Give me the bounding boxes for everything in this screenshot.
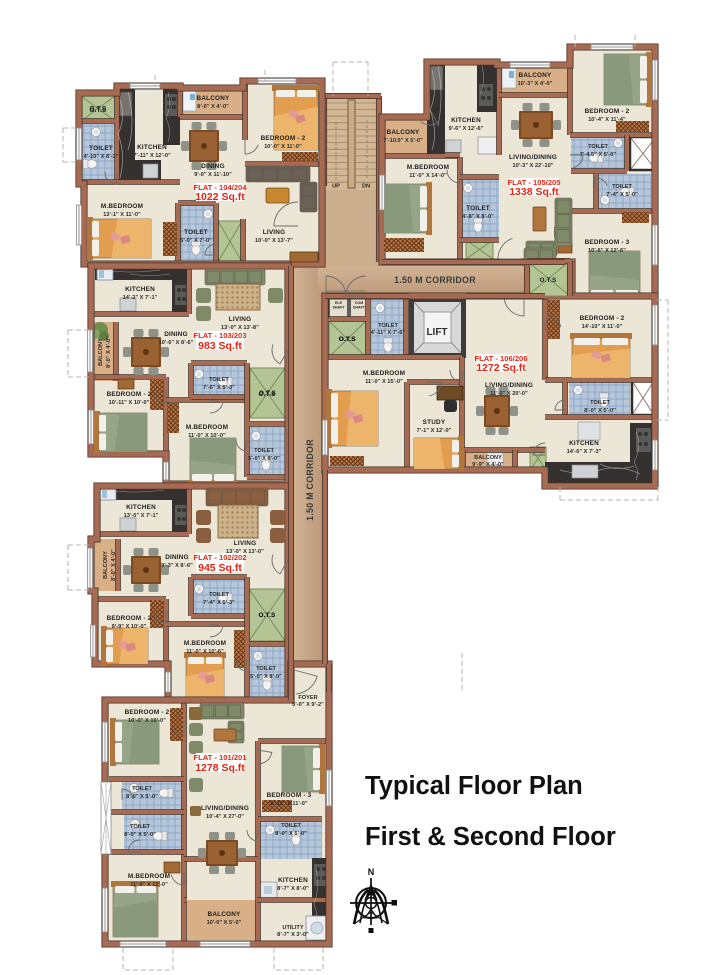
svg-text:14’-10” X 11’-0”: 14’-10” X 11’-0” <box>582 324 623 330</box>
svg-text:SHAFT: SHAFT <box>333 306 346 310</box>
svg-text:First & Second Floor: First & Second Floor <box>365 823 616 851</box>
svg-text:BEDROOM - 2: BEDROOM - 2 <box>580 315 625 322</box>
svg-text:7’-4” X 5’-3”: 7’-4” X 5’-3” <box>203 600 235 606</box>
svg-text:Typical Floor Plan: Typical Floor Plan <box>365 772 583 800</box>
svg-text:8’-0” X 5’-0”: 8’-0” X 5’-0” <box>126 794 158 800</box>
svg-text:UP: UP <box>332 184 340 190</box>
svg-text:10’-6” X 8’-6”: 10’-6” X 8’-6” <box>159 340 194 346</box>
svg-text:TOILET: TOILET <box>89 145 113 152</box>
svg-text:13’-0” X 7’-1”: 13’-0” X 7’-1” <box>124 513 159 519</box>
svg-text:BEDROOM - 3: BEDROOM - 3 <box>267 792 312 799</box>
svg-text:BALCONY: BALCONY <box>474 455 502 461</box>
svg-text:TOILET: TOILET <box>254 448 274 454</box>
svg-text:LIVING: LIVING <box>234 540 257 547</box>
svg-text:M.BEDROOM: M.BEDROOM <box>101 203 143 210</box>
svg-text:BALCONY: BALCONY <box>519 72 553 79</box>
svg-text:DINING: DINING <box>165 554 189 561</box>
svg-text:BALCONY: BALCONY <box>103 551 109 579</box>
svg-text:SHAFT: SHAFT <box>353 306 366 310</box>
svg-text:10’-0” X 11’-0”: 10’-0” X 11’-0” <box>264 144 302 150</box>
svg-text:11’-0” X 10’-6”: 11’-0” X 10’-6” <box>186 649 224 655</box>
svg-text:10’-11” X 10’-0”: 10’-11” X 10’-0” <box>109 400 150 406</box>
svg-text:BEDROOM - 2: BEDROOM - 2 <box>107 391 152 398</box>
svg-text:TOILET: TOILET <box>378 323 398 329</box>
svg-text:TOILET: TOILET <box>132 786 152 792</box>
svg-text:5’-0” X 7’-0”: 5’-0” X 7’-0” <box>180 238 212 244</box>
svg-text:M.BEDROOM: M.BEDROOM <box>186 424 228 431</box>
svg-text:983 Sq.ft: 983 Sq.ft <box>198 340 242 352</box>
svg-text:4’-8” X 8’-0”: 4’-8” X 8’-0” <box>462 214 494 220</box>
svg-text:M.BEDROOM: M.BEDROOM <box>363 370 405 377</box>
svg-text:LIVING/DINING: LIVING/DINING <box>509 154 557 161</box>
svg-text:8’-0” X 5’-0”: 8’-0” X 5’-0” <box>275 831 307 837</box>
svg-text:11’-0” X 12’-0”: 11’-0” X 12’-0” <box>130 882 168 888</box>
svg-text:7’-4” X 5’-0”: 7’-4” X 5’-0” <box>606 192 638 198</box>
svg-text:O.T.S: O.T.S <box>259 391 277 398</box>
svg-text:1272 Sq.ft: 1272 Sq.ft <box>476 362 526 374</box>
svg-text:8’-0” X 4’-0”: 8’-0” X 4’-0” <box>106 336 112 368</box>
svg-text:BEDROOM - 3: BEDROOM - 3 <box>585 239 630 246</box>
svg-text:11’-0” X 20’-0”: 11’-0” X 20’-0” <box>490 391 528 397</box>
svg-text:UTILITY: UTILITY <box>282 925 303 931</box>
svg-text:7’-11” X 12’-0”: 7’-11” X 12’-0” <box>133 153 171 159</box>
svg-text:1278 Sq.ft: 1278 Sq.ft <box>195 762 245 774</box>
svg-text:7’-10.5” X 5’-0”: 7’-10.5” X 5’-0” <box>383 138 423 144</box>
svg-text:10’-0” X 13’-7”: 10’-0” X 13’-7” <box>255 238 293 244</box>
svg-text:7’-6” X 5’-3”: 7’-6” X 5’-3” <box>203 385 235 391</box>
svg-text:BEDROOM - 2: BEDROOM - 2 <box>261 135 306 142</box>
svg-text:945 Sq.ft: 945 Sq.ft <box>198 562 242 574</box>
svg-text:8’-0” X 5’-0”: 8’-0” X 5’-0” <box>584 408 616 414</box>
svg-text:10’-0” X 5’-0”: 10’-0” X 5’-0” <box>207 920 242 926</box>
svg-text:LIVING/DINING: LIVING/DINING <box>485 382 533 389</box>
svg-text:LIVING: LIVING <box>229 316 252 323</box>
svg-text:M.BEDROOM: M.BEDROOM <box>128 873 170 880</box>
svg-text:O.T.S: O.T.S <box>339 336 357 343</box>
svg-text:DN: DN <box>362 184 370 190</box>
svg-text:O.T.S: O.T.S <box>90 107 108 114</box>
svg-text:13’-1” X 11’-0”: 13’-1” X 11’-0” <box>103 212 141 218</box>
svg-text:TOILET: TOILET <box>209 592 229 598</box>
svg-text:11’-0” X 14’-0”: 11’-0” X 14’-0” <box>409 173 447 179</box>
svg-text:ELE: ELE <box>335 301 343 305</box>
svg-text:1.50 M CORRIDOR: 1.50 M CORRIDOR <box>394 275 476 285</box>
svg-text:10’-4” X 11’-4”: 10’-4” X 11’-4” <box>588 117 626 123</box>
svg-text:BALCONY: BALCONY <box>208 911 242 918</box>
svg-text:1022 Sq.ft: 1022 Sq.ft <box>195 191 245 203</box>
svg-text:TOILET: TOILET <box>256 666 276 672</box>
svg-text:9’-6” X 12’-6”: 9’-6” X 12’-6” <box>449 126 484 132</box>
svg-text:14’-6” X 7’-3”: 14’-6” X 7’-3” <box>567 449 602 455</box>
svg-text:KITCHEN: KITCHEN <box>278 877 308 884</box>
svg-text:O.T.S: O.T.S <box>259 612 277 619</box>
svg-text:8’-0” X 4’-0”: 8’-0” X 4’-0” <box>197 104 229 110</box>
svg-text:FLAT - 102/202: FLAT - 102/202 <box>193 553 246 562</box>
svg-text:DINING: DINING <box>201 163 225 170</box>
svg-text:LIVING/DINING: LIVING/DINING <box>201 805 249 812</box>
svg-text:1338 Sq.ft: 1338 Sq.ft <box>509 186 559 198</box>
svg-text:BALCONY: BALCONY <box>197 95 231 102</box>
svg-text:8’-11” X 11’-0”: 8’-11” X 11’-0” <box>270 801 308 807</box>
svg-text:7’-1” X 12’-0”: 7’-1” X 12’-0” <box>417 428 452 434</box>
svg-text:4’-10” X 8’-3”: 4’-10” X 8’-3” <box>84 154 119 160</box>
svg-text:FLAT - 101/201: FLAT - 101/201 <box>193 753 247 762</box>
svg-text:TOILET: TOILET <box>209 377 229 383</box>
svg-text:KITCHEN: KITCHEN <box>125 286 155 293</box>
svg-text:8’-7” X 8’-0”: 8’-7” X 8’-0” <box>277 886 309 892</box>
svg-text:TOILET: TOILET <box>588 144 608 150</box>
svg-text:11’-0” X 15’-0”: 11’-0” X 15’-0” <box>365 379 403 385</box>
svg-text:KITCHEN: KITCHEN <box>451 117 481 124</box>
svg-text:9’-0” X 11’-10”: 9’-0” X 11’-10” <box>194 172 232 178</box>
svg-text:10’-3” X 4’-0”: 10’-3” X 4’-0” <box>518 81 553 87</box>
svg-text:BEDROOM - 2: BEDROOM - 2 <box>585 108 630 115</box>
svg-text:1.50 M CORRIDOR: 1.50 M CORRIDOR <box>305 439 315 521</box>
svg-text:TOILET: TOILET <box>130 824 150 830</box>
svg-text:10’-3” X 22’-10”: 10’-3” X 22’-10” <box>512 163 553 169</box>
svg-text:M.BEDROOM: M.BEDROOM <box>184 640 226 647</box>
svg-text:STUDY: STUDY <box>423 419 446 426</box>
svg-text:TOILET: TOILET <box>281 823 301 829</box>
svg-text:TOILET: TOILET <box>466 205 490 212</box>
svg-text:FOYER: FOYER <box>298 695 317 701</box>
svg-text:5’-0” X 8’-0”: 5’-0” X 8’-0” <box>250 674 282 680</box>
svg-text:10’-0” X 10’-0”: 10’-0” X 10’-0” <box>128 718 166 724</box>
svg-text:TOILET: TOILET <box>590 400 610 406</box>
svg-text:10’-6” X 12’-6”: 10’-6” X 12’-6” <box>588 248 626 254</box>
svg-text:9’-3” X 8’-6”: 9’-3” X 8’-6” <box>161 563 193 569</box>
svg-text:5’-0” X 8’-0”: 5’-0” X 8’-0” <box>248 456 280 462</box>
svg-text:11’-0” X 10’-0”: 11’-0” X 10’-0” <box>188 433 226 439</box>
svg-text:BALCONY: BALCONY <box>387 129 421 136</box>
svg-text:8’-7” X 3’-0”: 8’-7” X 3’-0” <box>277 932 309 938</box>
svg-text:N: N <box>368 867 375 877</box>
svg-text:8’-0” X 5’-0”: 8’-0” X 5’-0” <box>124 832 156 838</box>
svg-text:8’-0” X 4’-0”: 8’-0” X 4’-0” <box>111 549 117 581</box>
svg-text:TOILET: TOILET <box>612 184 632 190</box>
svg-text:4’-11” X 7’-6”: 4’-11” X 7’-6” <box>371 330 406 336</box>
svg-text:BALCONY: BALCONY <box>98 338 104 366</box>
svg-text:LIFT: LIFT <box>426 327 447 338</box>
svg-text:BEDROOM - 2: BEDROOM - 2 <box>107 615 152 622</box>
svg-text:7’-4.5” X 5’-0”: 7’-4.5” X 5’-0” <box>580 152 617 158</box>
svg-text:5’-0” X 9’-2”: 5’-0” X 9’-2” <box>292 702 324 708</box>
svg-text:BEDROOM - 2: BEDROOM - 2 <box>125 709 170 716</box>
svg-text:10’-4” X 27’-0”: 10’-4” X 27’-0” <box>206 814 244 820</box>
svg-text:9’-9” X 4’-0”: 9’-9” X 4’-0” <box>472 462 504 468</box>
svg-text:O.T.S: O.T.S <box>540 277 558 284</box>
svg-text:M.BEDROOM: M.BEDROOM <box>407 164 449 171</box>
svg-text:KITCHEN: KITCHEN <box>569 440 599 447</box>
svg-text:COM: COM <box>355 301 363 305</box>
svg-text:TOILET: TOILET <box>184 229 208 236</box>
svg-text:FLAT - 103/203: FLAT - 103/203 <box>193 331 246 340</box>
svg-text:14’-2” X 7’-1”: 14’-2” X 7’-1” <box>123 295 158 301</box>
svg-text:KITCHEN: KITCHEN <box>137 144 167 151</box>
svg-text:LIVING: LIVING <box>263 229 286 236</box>
svg-text:9’-9” X 10’-0”: 9’-9” X 10’-0” <box>112 624 147 630</box>
svg-text:DINING: DINING <box>164 331 188 338</box>
svg-text:KITCHEN: KITCHEN <box>126 504 156 511</box>
